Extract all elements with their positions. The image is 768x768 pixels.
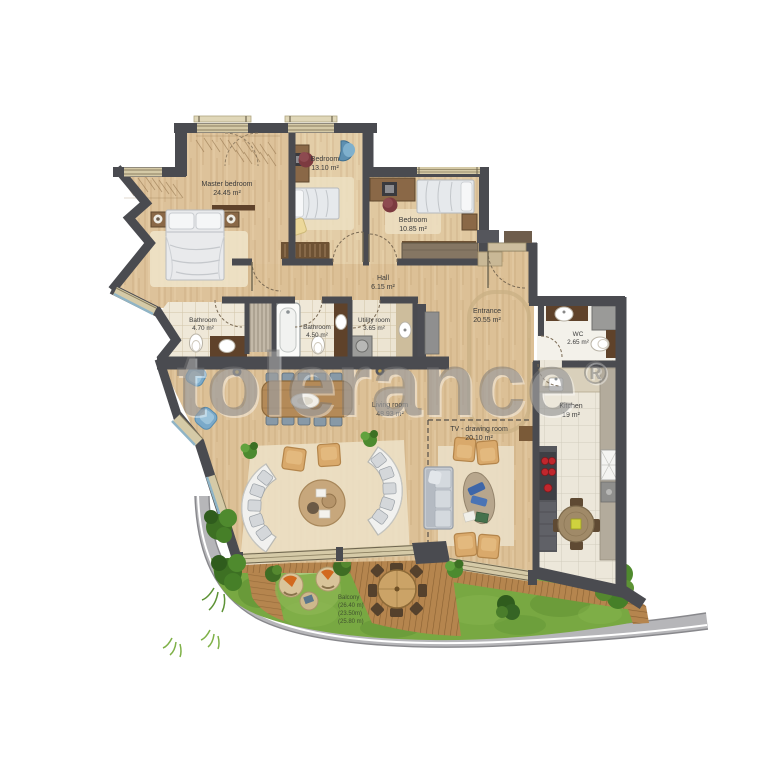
svg-text:24.45 m²: 24.45 m² <box>213 190 241 197</box>
svg-text:Master bedroom: Master bedroom <box>202 181 253 188</box>
svg-text:13.10 m²: 13.10 m² <box>311 165 339 172</box>
svg-text:(25.80 m): (25.80 m) <box>338 619 364 625</box>
svg-text:(26.40 m): (26.40 m) <box>338 603 364 609</box>
svg-text:Bedroom: Bedroom <box>311 156 340 163</box>
svg-text:10.85 m²: 10.85 m² <box>399 226 427 233</box>
svg-text:20.55 m²: 20.55 m² <box>473 317 501 324</box>
svg-text:3.65 m²: 3.65 m² <box>363 325 385 332</box>
svg-text:6.15 m²: 6.15 m² <box>371 284 395 291</box>
svg-text:4.70 m²: 4.70 m² <box>192 325 214 332</box>
svg-text:®: ® <box>584 355 608 391</box>
svg-text:tolerance: tolerance <box>176 335 576 435</box>
svg-text:Bathroom: Bathroom <box>303 324 331 331</box>
svg-text:Bedroom: Bedroom <box>399 217 428 224</box>
svg-text:Utility room: Utility room <box>358 317 390 324</box>
svg-text:(23.50m): (23.50m) <box>338 611 362 617</box>
svg-text:Bathroom: Bathroom <box>189 317 217 324</box>
svg-text:Balcony: Balcony <box>338 595 359 601</box>
svg-text:Hall: Hall <box>377 275 390 282</box>
svg-text:Entrance: Entrance <box>473 308 501 315</box>
